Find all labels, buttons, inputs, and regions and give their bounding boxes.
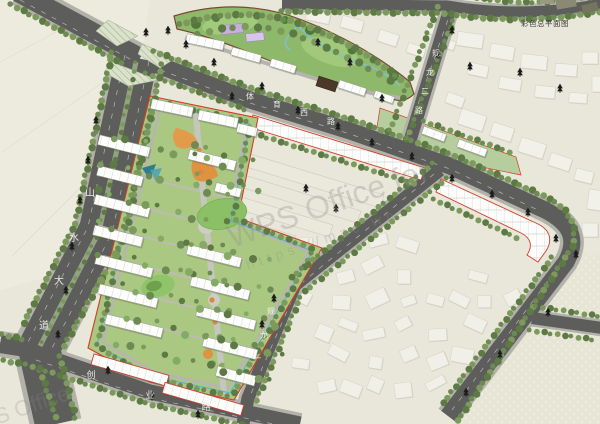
svg-text:规: 规 [432,48,440,58]
svg-text:二: 二 [421,87,429,96]
svg-text:龙: 龙 [426,67,434,77]
svg-text:育: 育 [273,99,281,109]
svg-text:业: 业 [145,390,154,400]
svg-text:龙: 龙 [260,330,268,340]
svg-text:创: 创 [86,369,95,380]
site-plan-canvas: 山 水 大 道 体 育 西 路 规 龙 二 路 规 龙 一 路 创 业 路 彩色… [0,0,600,424]
svg-text:道: 道 [39,319,49,332]
svg-text:山: 山 [85,187,95,199]
svg-text:路: 路 [201,401,210,412]
svg-text:水: 水 [69,232,79,244]
plan-title: 彩色总平面图 [521,18,569,28]
svg-text:路: 路 [415,105,423,115]
svg-text:规: 规 [267,306,275,316]
svg-text:路: 路 [327,116,335,126]
svg-text:路: 路 [246,375,254,385]
site-plan-page: 山 水 大 道 体 育 西 路 规 龙 二 路 规 龙 一 路 创 业 路 彩色… [0,0,600,424]
svg-text:西: 西 [300,108,308,117]
svg-text:大: 大 [54,274,64,287]
svg-text:体: 体 [246,91,254,101]
svg-text:一: 一 [253,354,261,363]
